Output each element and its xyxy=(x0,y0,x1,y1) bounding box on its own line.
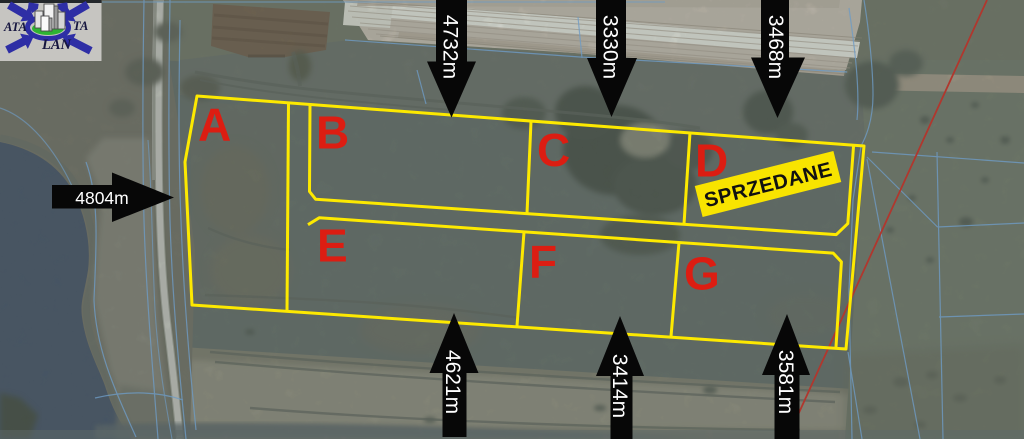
svg-text:TA: TA xyxy=(73,19,88,33)
svg-text:4804m: 4804m xyxy=(75,188,129,208)
svg-text:3330m: 3330m xyxy=(599,15,622,79)
svg-text:4621m: 4621m xyxy=(441,350,464,414)
svg-text:3468m: 3468m xyxy=(764,15,787,79)
svg-text:F: F xyxy=(529,236,557,288)
svg-text:3581m: 3581m xyxy=(774,350,797,414)
svg-text:A: A xyxy=(198,99,231,151)
svg-text:E: E xyxy=(317,220,348,272)
svg-text:C: C xyxy=(537,124,570,176)
svg-text:D: D xyxy=(695,135,728,187)
svg-text:LAN: LAN xyxy=(41,37,72,53)
svg-text:B: B xyxy=(316,107,349,159)
svg-text:G: G xyxy=(684,248,720,300)
svg-text:ATA: ATA xyxy=(3,20,27,34)
svg-text:3414m: 3414m xyxy=(608,354,631,418)
svg-text:4732m: 4732m xyxy=(439,15,462,79)
